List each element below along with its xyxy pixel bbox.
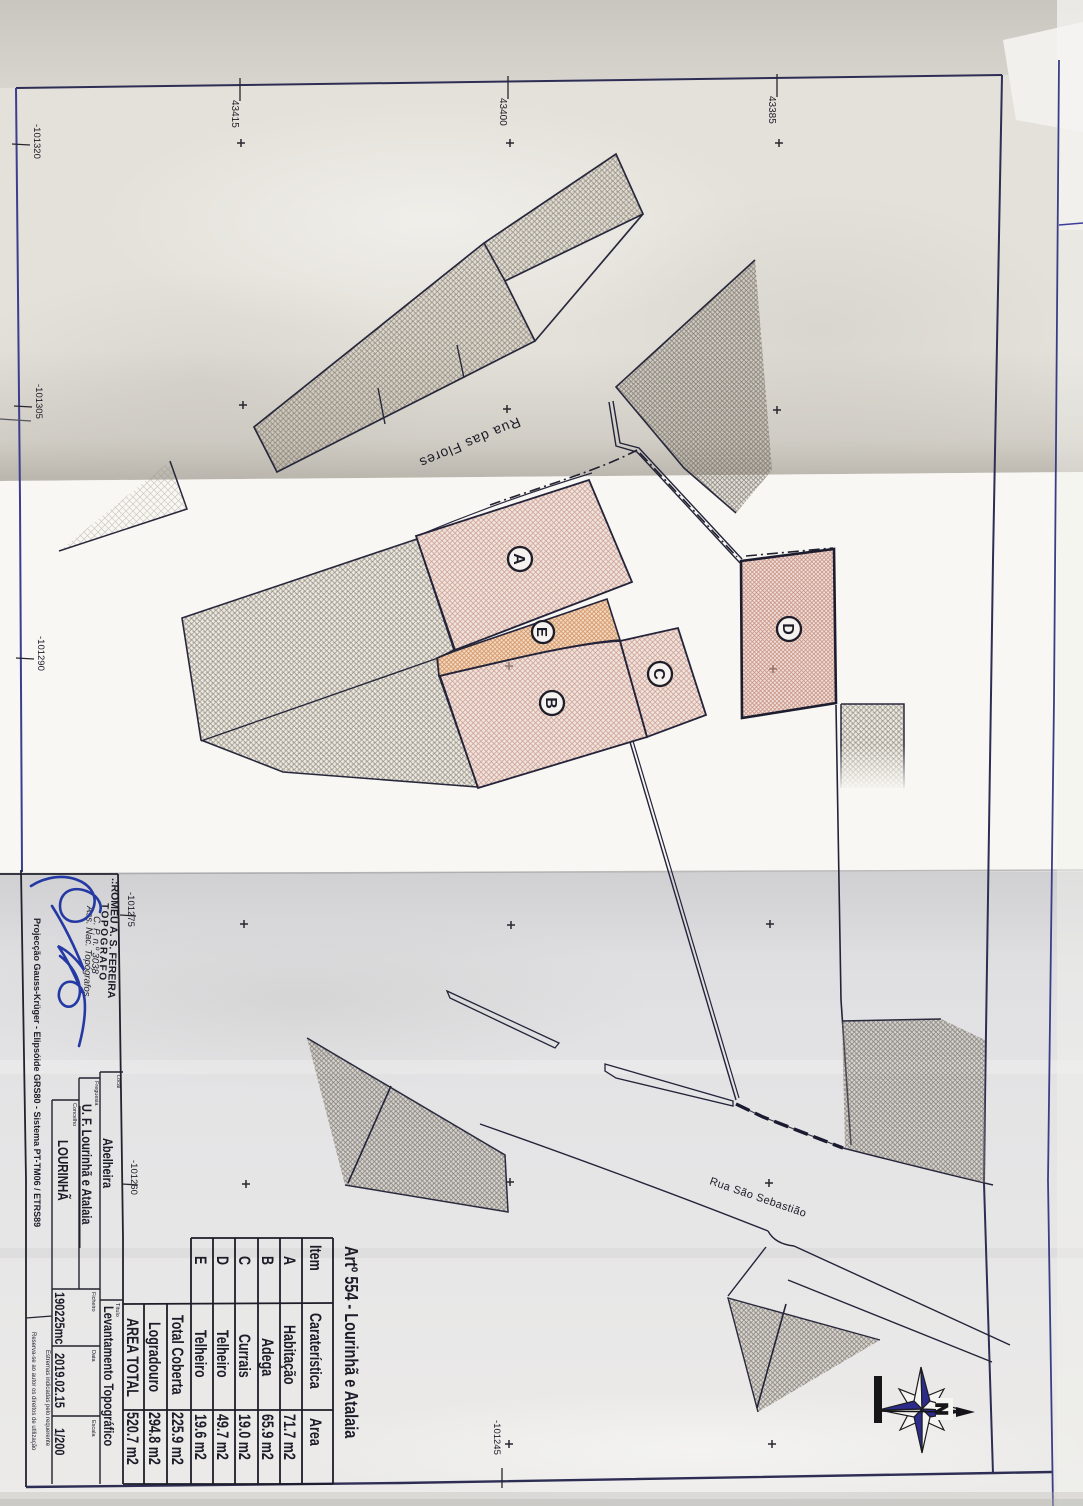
svg-text:Item: Item <box>306 1245 324 1271</box>
svg-text:Local: Local <box>115 1075 121 1088</box>
svg-text:Concelho: Concelho <box>71 1103 77 1126</box>
svg-text:Habitação: Habitação <box>280 1325 298 1385</box>
svg-text:Telheiro: Telheiro <box>191 1330 209 1378</box>
svg-text:D: D <box>779 623 796 635</box>
svg-text:-101290: -101290 <box>35 636 46 671</box>
svg-text:19.0 m2: 19.0 m2 <box>235 1414 253 1460</box>
svg-text:71.7 m2: 71.7 m2 <box>280 1414 298 1460</box>
svg-text:225.9 m2: 225.9 m2 <box>168 1412 186 1465</box>
svg-text:-101260: -101260 <box>128 1160 139 1195</box>
svg-text:Projecção Gauss-Krüger - Elips: Projecção Gauss-Krüger - Elipsóide GRS80… <box>32 918 42 1227</box>
svg-text:Data: Data <box>90 1350 96 1363</box>
svg-text:294.8 m2: 294.8 m2 <box>145 1412 163 1465</box>
svg-text:Telheiro: Telheiro <box>213 1330 231 1378</box>
svg-text:65.9 m2: 65.9 m2 <box>258 1414 276 1460</box>
svg-text:520.7 m2: 520.7 m2 <box>123 1412 141 1465</box>
svg-text:Estremas indicadas pelo requer: Estremas indicadas pelo requerente <box>44 1350 50 1447</box>
svg-text:E: E <box>191 1256 209 1265</box>
svg-text:Logradouro: Logradouro <box>145 1322 163 1392</box>
svg-text:43400: 43400 <box>497 98 508 126</box>
svg-text:D: D <box>213 1256 231 1265</box>
svg-text:A: A <box>280 1256 298 1265</box>
svg-text:43415: 43415 <box>229 100 240 128</box>
svg-text:Artº 554 - Lourinhã e Atalaia: Artº 554 - Lourinhã e Atalaia <box>341 1246 362 1439</box>
svg-text:Total Coberta: Total Coberta <box>168 1315 186 1395</box>
svg-text:Ficheiro: Ficheiro <box>90 1292 96 1312</box>
svg-text:Area: Area <box>306 1418 324 1447</box>
svg-text:-101305: -101305 <box>33 384 44 419</box>
svg-text:Abelheira: Abelheira <box>100 1138 115 1188</box>
svg-text:Reserva-se ao autor os direito: Reserva-se ao autor os direitos de utili… <box>30 1332 36 1451</box>
svg-text:Caraterística: Caraterística <box>306 1313 324 1389</box>
svg-text:AREA TOTAL: AREA TOTAL <box>123 1318 141 1397</box>
svg-text:-101275: -101275 <box>125 892 136 927</box>
svg-text:Currais: Currais <box>235 1334 253 1378</box>
svg-text:Freguesia: Freguesia <box>93 1081 99 1106</box>
svg-text:Adega: Adega <box>258 1338 276 1377</box>
svg-text:Escala: Escala <box>90 1420 96 1437</box>
svg-text:49.7 m2: 49.7 m2 <box>213 1414 231 1460</box>
svg-text:N: N <box>932 1403 951 1415</box>
svg-text:LOURINHÃ: LOURINHÃ <box>55 1140 72 1201</box>
svg-text:-101245: -101245 <box>491 1420 502 1455</box>
svg-text:190225mc: 190225mc <box>52 1292 67 1345</box>
svg-text:A: A <box>510 553 527 565</box>
svg-text:2019.02.15: 2019.02.15 <box>52 1353 67 1408</box>
svg-text:-101320: -101320 <box>31 124 42 159</box>
svg-text:U. F. Lourinhã e Atalaia: U. F. Lourinhã e Atalaia <box>79 1104 94 1225</box>
svg-text:Levantamento Topográfico: Levantamento Topográfico <box>101 1306 116 1447</box>
svg-text:19.6 m2: 19.6 m2 <box>191 1414 209 1460</box>
svg-text:E: E <box>533 627 550 637</box>
svg-text:C: C <box>650 668 667 680</box>
svg-text:C: C <box>235 1256 253 1265</box>
svg-text:B: B <box>542 697 559 709</box>
svg-text:43385: 43385 <box>766 96 777 124</box>
svg-text:B: B <box>258 1256 276 1265</box>
svg-text:1/200: 1/200 <box>52 1428 67 1456</box>
